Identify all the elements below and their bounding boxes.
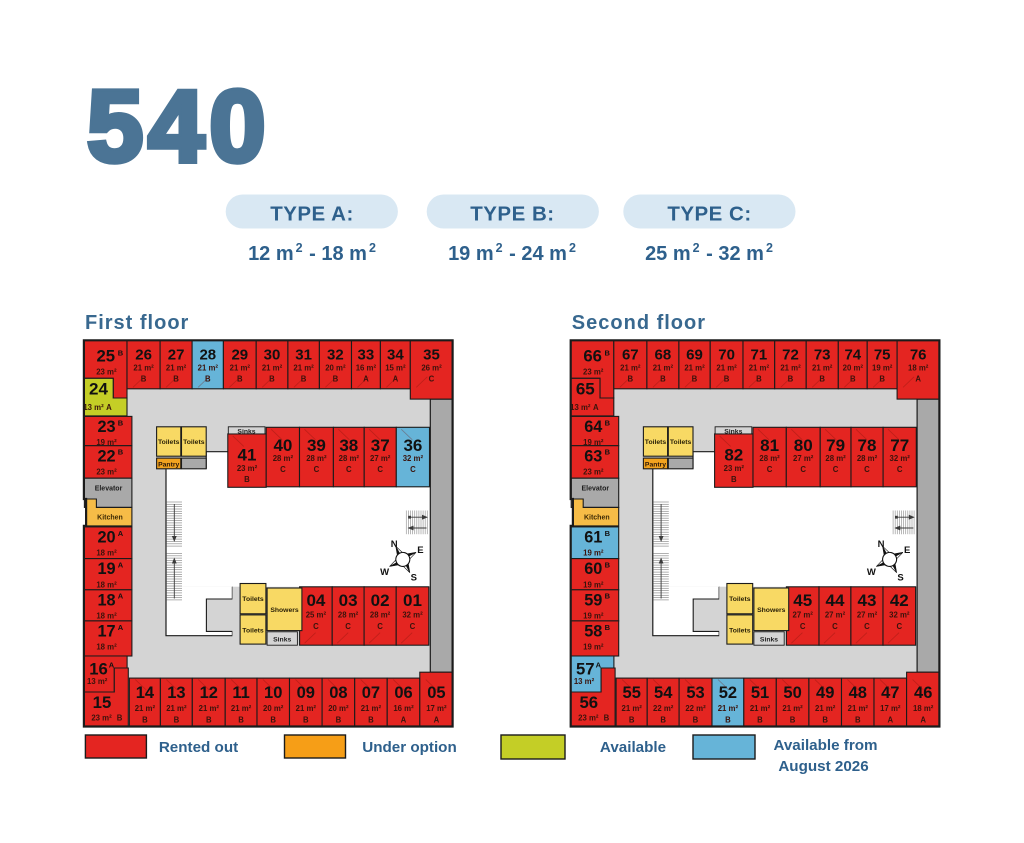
svg-text:C: C bbox=[377, 465, 383, 474]
svg-text:B: B bbox=[368, 716, 374, 725]
svg-text:45: 45 bbox=[793, 591, 812, 610]
svg-text:21 m²: 21 m² bbox=[718, 704, 739, 713]
svg-text:A: A bbox=[920, 716, 926, 725]
svg-text:28 m²: 28 m² bbox=[338, 610, 359, 619]
svg-text:23 m²: 23 m² bbox=[237, 464, 258, 473]
svg-text:B: B bbox=[206, 716, 212, 725]
svg-text:A: A bbox=[118, 561, 124, 570]
svg-text:Sinks: Sinks bbox=[760, 637, 778, 644]
svg-text:21 m²: 21 m² bbox=[135, 704, 156, 713]
svg-text:B: B bbox=[725, 716, 731, 725]
svg-text:14: 14 bbox=[136, 684, 155, 702]
svg-text:B: B bbox=[605, 592, 611, 601]
svg-text:C: C bbox=[346, 465, 352, 474]
svg-text:44: 44 bbox=[826, 591, 845, 610]
svg-text:28 m²: 28 m² bbox=[306, 454, 327, 463]
svg-text:20 m²: 20 m² bbox=[328, 704, 349, 713]
svg-text:17 m²: 17 m² bbox=[880, 704, 901, 713]
svg-text:C: C bbox=[833, 465, 839, 474]
svg-text:16 m²: 16 m² bbox=[393, 704, 414, 713]
svg-text:35: 35 bbox=[423, 346, 440, 363]
svg-text:TYPE B:: TYPE B: bbox=[470, 203, 554, 226]
svg-text:Showers: Showers bbox=[270, 607, 299, 614]
svg-text:Available: Available bbox=[600, 739, 666, 756]
svg-text:52: 52 bbox=[719, 684, 737, 702]
svg-text:20 m²: 20 m² bbox=[325, 363, 346, 372]
svg-text:B: B bbox=[788, 374, 794, 383]
svg-text:18 m²: 18 m² bbox=[96, 612, 117, 621]
svg-text:06: 06 bbox=[394, 684, 412, 702]
svg-text:78: 78 bbox=[858, 436, 877, 455]
svg-text:21 m²: 21 m² bbox=[198, 363, 219, 372]
svg-text:29: 29 bbox=[231, 346, 248, 363]
svg-text:A: A bbox=[118, 529, 124, 538]
svg-text:51: 51 bbox=[751, 684, 769, 702]
svg-text:66: 66 bbox=[583, 347, 602, 366]
svg-text:C: C bbox=[800, 622, 806, 631]
svg-text:Available from: Available from bbox=[773, 737, 877, 754]
svg-text:TYPE A:: TYPE A: bbox=[270, 203, 354, 226]
svg-text:B: B bbox=[118, 348, 124, 357]
svg-text:First floor: First floor bbox=[85, 312, 189, 334]
svg-text:Pantry: Pantry bbox=[645, 461, 666, 468]
svg-text:B: B bbox=[605, 561, 611, 570]
svg-text:A: A bbox=[118, 623, 124, 632]
svg-text:69: 69 bbox=[686, 346, 703, 363]
svg-text:B: B bbox=[855, 716, 861, 725]
svg-text:C: C bbox=[314, 465, 320, 474]
svg-text:27 m²: 27 m² bbox=[370, 454, 391, 463]
svg-text:21 m²: 21 m² bbox=[653, 363, 674, 372]
svg-text:27: 27 bbox=[168, 346, 185, 363]
svg-text:W: W bbox=[867, 567, 876, 578]
svg-text:11: 11 bbox=[232, 684, 249, 702]
svg-text:72: 72 bbox=[782, 346, 799, 363]
svg-text:E: E bbox=[904, 545, 910, 556]
svg-text:A: A bbox=[915, 374, 921, 383]
svg-text:47: 47 bbox=[881, 684, 899, 702]
svg-text:58: 58 bbox=[584, 623, 602, 641]
svg-text:77: 77 bbox=[890, 436, 909, 455]
svg-text:32 m²: 32 m² bbox=[889, 610, 910, 619]
svg-text:21 m²: 21 m² bbox=[848, 704, 869, 713]
svg-text:A: A bbox=[593, 403, 599, 412]
svg-text:28 m²: 28 m² bbox=[857, 454, 878, 463]
svg-text:C: C bbox=[410, 622, 416, 631]
svg-text:19 m²: 19 m² bbox=[583, 643, 604, 652]
svg-text:23 m²: 23 m² bbox=[96, 368, 117, 377]
svg-text:23 m²: 23 m² bbox=[91, 713, 112, 722]
svg-text:22 m²: 22 m² bbox=[685, 704, 706, 713]
svg-text:13 m²: 13 m² bbox=[570, 403, 591, 412]
svg-text:30: 30 bbox=[264, 346, 281, 363]
svg-text:48: 48 bbox=[849, 684, 867, 702]
svg-text:21 m²: 21 m² bbox=[782, 704, 803, 713]
svg-text:56: 56 bbox=[579, 693, 598, 712]
svg-text:21 m²: 21 m² bbox=[296, 704, 317, 713]
svg-text:19 m²: 19 m² bbox=[583, 549, 604, 558]
svg-text:13 m²: 13 m² bbox=[87, 677, 108, 686]
svg-text:79: 79 bbox=[826, 436, 845, 455]
svg-text:37: 37 bbox=[371, 436, 390, 455]
svg-text:21 m²: 21 m² bbox=[293, 363, 314, 372]
svg-text:21 m²: 21 m² bbox=[361, 704, 382, 713]
svg-text:21 m²: 21 m² bbox=[780, 363, 801, 372]
svg-text:Sinks: Sinks bbox=[237, 428, 255, 435]
svg-text:C: C bbox=[410, 465, 416, 474]
svg-text:23: 23 bbox=[97, 418, 115, 436]
svg-text:A: A bbox=[887, 716, 893, 725]
svg-text:74: 74 bbox=[844, 346, 861, 363]
svg-text:19: 19 bbox=[97, 560, 115, 578]
svg-text:A: A bbox=[118, 592, 124, 601]
svg-text:C: C bbox=[767, 465, 773, 474]
svg-text:27 m²: 27 m² bbox=[793, 454, 814, 463]
svg-text:02: 02 bbox=[371, 591, 390, 610]
svg-text:21 m²: 21 m² bbox=[716, 363, 737, 372]
svg-text:80: 80 bbox=[794, 436, 813, 455]
svg-text:C: C bbox=[864, 622, 870, 631]
svg-text:18 m²: 18 m² bbox=[908, 363, 929, 372]
svg-text:19 m²: 19 m² bbox=[872, 363, 893, 372]
svg-text:Toilets: Toilets bbox=[645, 439, 667, 446]
svg-text:Toilets: Toilets bbox=[242, 628, 264, 635]
svg-text:C: C bbox=[280, 465, 286, 474]
svg-text:49: 49 bbox=[816, 684, 834, 702]
svg-text:B: B bbox=[692, 374, 698, 383]
svg-text:Kitchen: Kitchen bbox=[97, 514, 123, 521]
svg-text:21 m²: 21 m² bbox=[812, 363, 833, 372]
svg-text:16: 16 bbox=[89, 659, 108, 678]
svg-text:19 m²: 19 m² bbox=[583, 580, 604, 589]
svg-text:Toilets: Toilets bbox=[183, 439, 205, 446]
svg-text:27 m²: 27 m² bbox=[857, 610, 878, 619]
svg-text:46: 46 bbox=[914, 684, 932, 702]
svg-text:E: E bbox=[417, 545, 423, 556]
svg-text:13 m²: 13 m² bbox=[83, 403, 104, 412]
svg-text:53: 53 bbox=[686, 684, 704, 702]
svg-text:C: C bbox=[313, 622, 319, 631]
svg-text:S: S bbox=[411, 573, 417, 584]
svg-text:21 m²: 21 m² bbox=[230, 363, 251, 372]
svg-text:28: 28 bbox=[199, 346, 216, 363]
svg-text:B: B bbox=[660, 716, 666, 725]
svg-text:Sinks: Sinks bbox=[724, 428, 742, 435]
svg-text:B: B bbox=[270, 716, 276, 725]
svg-text:B: B bbox=[205, 374, 211, 383]
svg-text:A: A bbox=[401, 716, 407, 725]
svg-text:B: B bbox=[173, 374, 179, 383]
svg-text:C: C bbox=[864, 465, 870, 474]
svg-text:B: B bbox=[303, 716, 309, 725]
svg-text:68: 68 bbox=[655, 346, 672, 363]
svg-text:32 m²: 32 m² bbox=[403, 454, 424, 463]
svg-text:81: 81 bbox=[760, 436, 779, 455]
svg-text:18 m²: 18 m² bbox=[913, 704, 934, 713]
svg-text:07: 07 bbox=[362, 684, 380, 702]
svg-text:TYPE C:: TYPE C: bbox=[667, 203, 751, 226]
svg-text:Showers: Showers bbox=[757, 607, 786, 614]
svg-text:75: 75 bbox=[874, 346, 891, 363]
svg-text:B: B bbox=[731, 475, 737, 484]
svg-text:21 m²: 21 m² bbox=[622, 704, 643, 713]
svg-text:28 m²: 28 m² bbox=[370, 610, 391, 619]
svg-text:S: S bbox=[897, 573, 903, 584]
svg-text:64: 64 bbox=[584, 418, 602, 436]
svg-text:C: C bbox=[832, 622, 838, 631]
svg-text:B: B bbox=[604, 348, 610, 357]
svg-text:B: B bbox=[118, 418, 124, 427]
svg-text:Elevator: Elevator bbox=[581, 486, 609, 493]
svg-text:33: 33 bbox=[358, 346, 375, 363]
svg-text:B: B bbox=[605, 529, 611, 538]
svg-text:09: 09 bbox=[297, 684, 315, 702]
svg-text:38: 38 bbox=[339, 436, 358, 455]
svg-text:20: 20 bbox=[97, 529, 115, 547]
svg-text:C: C bbox=[896, 622, 902, 631]
svg-text:B: B bbox=[605, 418, 611, 427]
svg-text:15: 15 bbox=[93, 693, 112, 712]
svg-text:24: 24 bbox=[89, 380, 108, 399]
svg-text:61: 61 bbox=[584, 529, 602, 547]
svg-text:57: 57 bbox=[576, 659, 595, 678]
svg-text:21 m²: 21 m² bbox=[750, 704, 771, 713]
svg-text:59: 59 bbox=[584, 591, 602, 609]
svg-text:B: B bbox=[117, 713, 123, 722]
svg-text:67: 67 bbox=[622, 346, 639, 363]
svg-text:22 m²: 22 m² bbox=[653, 704, 674, 713]
svg-text:Toilets: Toilets bbox=[729, 628, 751, 635]
svg-text:21 m²: 21 m² bbox=[815, 704, 836, 713]
svg-text:18: 18 bbox=[97, 591, 115, 609]
svg-text:23 m²: 23 m² bbox=[583, 467, 604, 476]
svg-text:23 m²: 23 m² bbox=[578, 713, 599, 722]
svg-text:25: 25 bbox=[97, 347, 116, 366]
svg-text:23 m²: 23 m² bbox=[96, 467, 117, 476]
svg-text:B: B bbox=[822, 716, 828, 725]
svg-text:B: B bbox=[269, 374, 275, 383]
svg-text:18 m²: 18 m² bbox=[96, 580, 117, 589]
svg-text:B: B bbox=[333, 374, 339, 383]
svg-text:A: A bbox=[434, 716, 440, 725]
svg-text:31: 31 bbox=[295, 346, 312, 363]
svg-text:540: 540 bbox=[87, 71, 271, 183]
svg-text:B: B bbox=[244, 475, 250, 484]
svg-text:01: 01 bbox=[403, 591, 422, 610]
svg-text:B: B bbox=[336, 716, 342, 725]
svg-text:B: B bbox=[693, 716, 699, 725]
svg-text:N: N bbox=[878, 539, 885, 550]
svg-text:C: C bbox=[345, 622, 351, 631]
svg-text:10: 10 bbox=[264, 684, 282, 702]
svg-text:B: B bbox=[819, 374, 825, 383]
svg-text:55: 55 bbox=[623, 684, 641, 702]
svg-text:Second floor: Second floor bbox=[572, 312, 706, 334]
svg-text:21 m²: 21 m² bbox=[231, 704, 252, 713]
svg-text:Kitchen: Kitchen bbox=[584, 514, 610, 521]
svg-text:27 m²: 27 m² bbox=[825, 610, 846, 619]
svg-text:B: B bbox=[605, 448, 611, 457]
svg-text:Sinks: Sinks bbox=[273, 637, 291, 644]
svg-text:36: 36 bbox=[403, 436, 422, 455]
svg-text:17: 17 bbox=[97, 623, 115, 641]
svg-text:B: B bbox=[238, 716, 244, 725]
svg-text:15 m²: 15 m² bbox=[385, 363, 406, 372]
svg-text:42: 42 bbox=[890, 591, 909, 610]
svg-text:B: B bbox=[660, 374, 666, 383]
svg-text:28 m²: 28 m² bbox=[339, 454, 360, 463]
svg-text:C: C bbox=[377, 622, 383, 631]
svg-text:B: B bbox=[756, 374, 762, 383]
svg-text:50: 50 bbox=[783, 684, 801, 702]
svg-text:W: W bbox=[380, 567, 389, 578]
svg-text:12: 12 bbox=[200, 684, 218, 702]
svg-text:32: 32 bbox=[327, 346, 344, 363]
svg-text:N: N bbox=[391, 539, 398, 550]
svg-text:60: 60 bbox=[584, 560, 602, 578]
svg-text:13 m²: 13 m² bbox=[574, 677, 595, 686]
svg-text:Elevator: Elevator bbox=[95, 486, 123, 493]
svg-text:23 m²: 23 m² bbox=[583, 368, 604, 377]
svg-text:05: 05 bbox=[427, 684, 445, 702]
svg-text:B: B bbox=[629, 716, 635, 725]
svg-text:21 m²: 21 m² bbox=[166, 363, 187, 372]
svg-text:Pantry: Pantry bbox=[158, 461, 179, 468]
svg-text:18 m²: 18 m² bbox=[96, 549, 117, 558]
svg-text:28 m²: 28 m² bbox=[273, 454, 294, 463]
svg-text:B: B bbox=[604, 713, 610, 722]
svg-text:16 m²: 16 m² bbox=[356, 363, 377, 372]
svg-text:82: 82 bbox=[724, 446, 743, 465]
svg-text:70: 70 bbox=[718, 346, 735, 363]
svg-text:54: 54 bbox=[654, 684, 673, 702]
svg-text:34: 34 bbox=[387, 346, 404, 363]
svg-text:25 m²: 25 m² bbox=[306, 610, 327, 619]
svg-text:B: B bbox=[118, 448, 124, 457]
svg-text:25 m2 - 32 m2: 25 m2 - 32 m2 bbox=[645, 241, 773, 265]
svg-text:03: 03 bbox=[339, 591, 358, 610]
svg-text:C: C bbox=[800, 465, 806, 474]
svg-text:21 m²: 21 m² bbox=[133, 363, 154, 372]
svg-text:B: B bbox=[142, 716, 148, 725]
svg-text:Toilets: Toilets bbox=[670, 439, 692, 446]
svg-text:63: 63 bbox=[584, 447, 602, 465]
svg-text:21 m²: 21 m² bbox=[166, 704, 187, 713]
svg-text:August 2026: August 2026 bbox=[778, 758, 868, 775]
svg-text:C: C bbox=[897, 465, 903, 474]
svg-text:21 m²: 21 m² bbox=[684, 363, 705, 372]
svg-text:32 m²: 32 m² bbox=[890, 454, 911, 463]
svg-text:23 m²: 23 m² bbox=[724, 464, 745, 473]
svg-text:22: 22 bbox=[97, 447, 115, 465]
svg-text:39: 39 bbox=[307, 436, 326, 455]
svg-text:B: B bbox=[605, 623, 611, 632]
svg-text:65: 65 bbox=[576, 380, 595, 399]
svg-text:B: B bbox=[174, 716, 180, 725]
svg-text:19 m2 - 24 m2: 19 m2 - 24 m2 bbox=[448, 241, 576, 265]
svg-text:B: B bbox=[757, 716, 763, 725]
svg-text:17 m²: 17 m² bbox=[426, 704, 447, 713]
svg-text:A: A bbox=[106, 403, 112, 412]
svg-text:27 m²: 27 m² bbox=[793, 610, 814, 619]
svg-text:B: B bbox=[790, 716, 796, 725]
svg-text:71: 71 bbox=[751, 346, 768, 363]
svg-text:B: B bbox=[301, 374, 307, 383]
svg-text:20 m²: 20 m² bbox=[263, 704, 284, 713]
svg-text:21 m²: 21 m² bbox=[749, 363, 770, 372]
svg-text:28 m²: 28 m² bbox=[825, 454, 846, 463]
svg-text:20 m²: 20 m² bbox=[843, 363, 864, 372]
svg-text:19 m²: 19 m² bbox=[583, 612, 604, 621]
svg-text:28 m²: 28 m² bbox=[759, 454, 780, 463]
svg-text:12 m2 - 18 m2: 12 m2 - 18 m2 bbox=[248, 241, 376, 265]
svg-text:C: C bbox=[429, 374, 435, 383]
svg-text:40: 40 bbox=[273, 436, 292, 455]
svg-text:21 m²: 21 m² bbox=[620, 363, 641, 372]
svg-text:21 m²: 21 m² bbox=[199, 704, 220, 713]
svg-text:32 m²: 32 m² bbox=[402, 610, 423, 619]
svg-text:13: 13 bbox=[167, 684, 185, 702]
svg-text:18 m²: 18 m² bbox=[96, 643, 117, 652]
svg-text:26: 26 bbox=[135, 346, 152, 363]
svg-text:73: 73 bbox=[814, 346, 831, 363]
svg-text:Toilets: Toilets bbox=[158, 439, 180, 446]
svg-text:26 m²: 26 m² bbox=[421, 363, 442, 372]
svg-text:43: 43 bbox=[858, 591, 877, 610]
svg-text:76: 76 bbox=[910, 346, 927, 363]
svg-text:Rented out: Rented out bbox=[159, 739, 238, 756]
svg-text:41: 41 bbox=[238, 446, 257, 465]
svg-text:Under option: Under option bbox=[362, 739, 456, 756]
svg-text:21 m²: 21 m² bbox=[262, 363, 283, 372]
svg-text:Toilets: Toilets bbox=[729, 596, 751, 603]
svg-text:Toilets: Toilets bbox=[242, 596, 264, 603]
svg-text:08: 08 bbox=[329, 684, 347, 702]
svg-text:04: 04 bbox=[306, 591, 325, 610]
